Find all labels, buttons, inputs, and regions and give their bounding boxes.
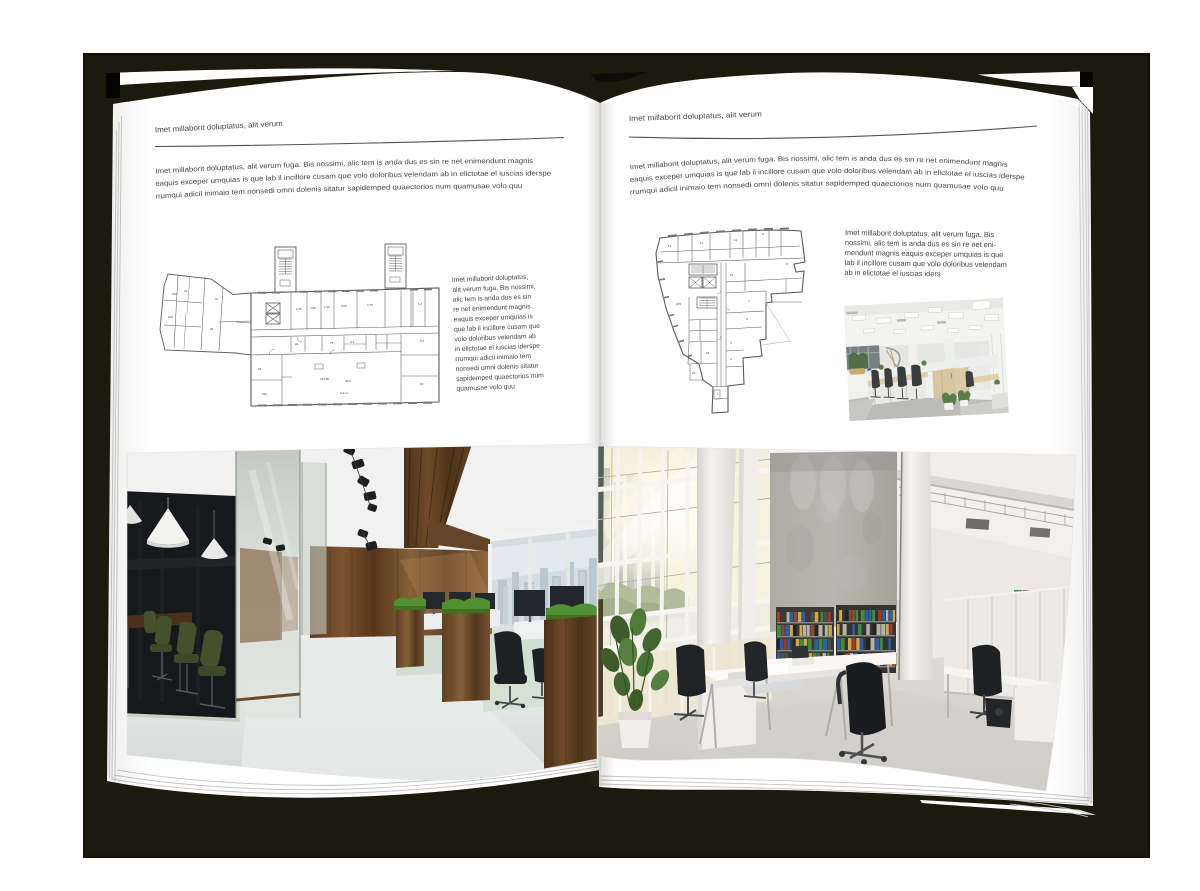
svg-text:40.5: 40.5: [345, 379, 351, 383]
svg-text:14: 14: [668, 244, 672, 248]
svg-text:206: 206: [168, 315, 173, 319]
svg-text:2.30: 2.30: [324, 305, 330, 309]
svg-text:3.75: 3.75: [367, 303, 373, 307]
svg-text:24: 24: [706, 351, 710, 355]
svg-text:2a: 2a: [295, 342, 299, 346]
svg-text:2.80: 2.80: [310, 306, 316, 310]
svg-text:2.75: 2.75: [296, 307, 302, 311]
svg-text:295: 295: [172, 292, 177, 296]
svg-text:29: 29: [184, 289, 188, 293]
svg-text:5.5: 5.5: [420, 339, 425, 343]
svg-text:142.80: 142.80: [320, 377, 330, 381]
svg-text:11: 11: [734, 238, 737, 242]
svg-text:205: 205: [676, 302, 681, 306]
svg-text:90: 90: [420, 382, 424, 386]
svg-text:15: 15: [730, 273, 734, 277]
svg-text:29a: 29a: [262, 392, 267, 396]
svg-text:1.6: 1.6: [418, 302, 423, 306]
svg-text:26: 26: [210, 327, 214, 331]
svg-text:ab in elictotae el iuscias ide: ab in elictotae el iuscias iders: [844, 268, 941, 278]
svg-text:75: 75: [330, 341, 334, 345]
svg-text:3.00: 3.00: [341, 304, 347, 308]
svg-text:2-й эт: 2-й эт: [340, 391, 349, 395]
svg-text:23: 23: [692, 371, 696, 375]
svg-text:32: 32: [215, 297, 219, 301]
svg-text:24: 24: [258, 367, 262, 371]
svg-text:13: 13: [700, 241, 704, 245]
svg-text:4.1: 4.1: [350, 340, 355, 344]
